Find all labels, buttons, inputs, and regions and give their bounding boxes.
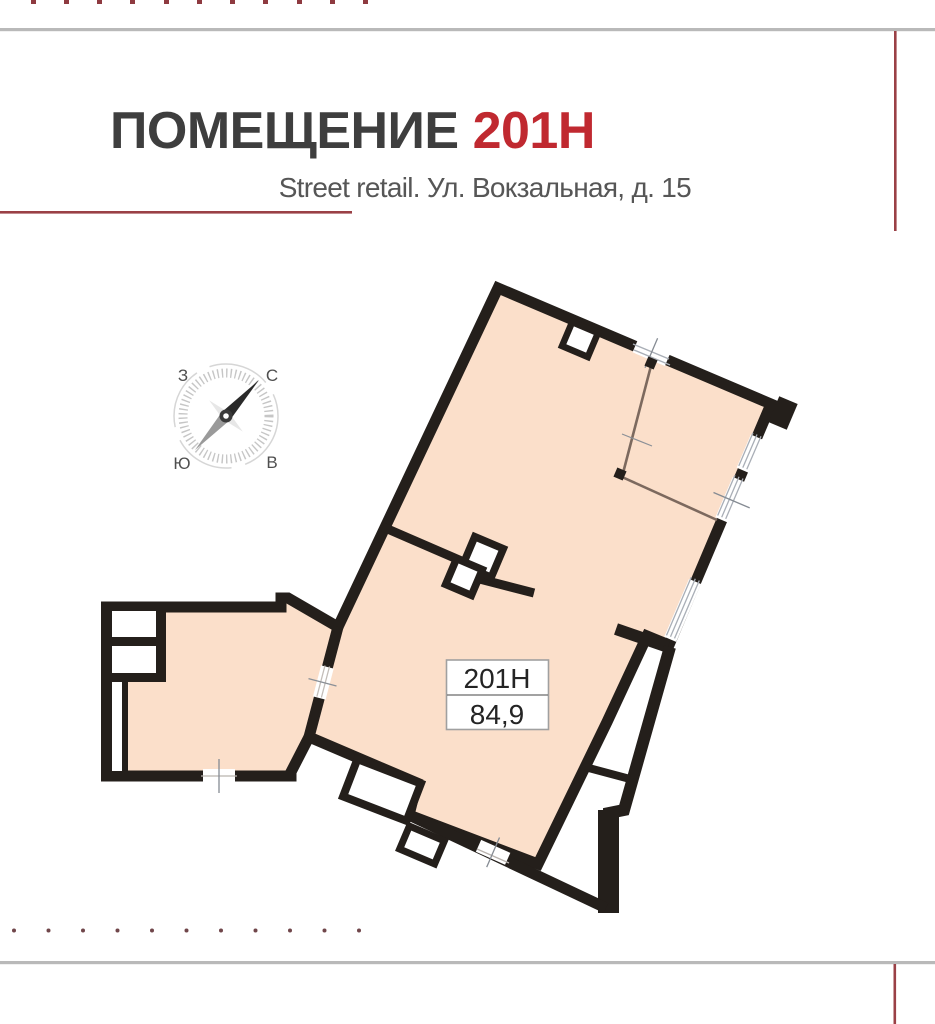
svg-text:З: З xyxy=(178,366,188,385)
svg-text:Ю: Ю xyxy=(173,454,190,473)
svg-text:ПОМЕЩЕНИЕ 201Н: ПОМЕЩЕНИЕ 201Н xyxy=(110,102,595,160)
svg-text:84,9: 84,9 xyxy=(470,699,525,730)
svg-text:Street retail. Ул. Вокзальная,: Street retail. Ул. Вокзальная, д. 15 xyxy=(279,172,691,203)
svg-text:201Н: 201Н xyxy=(464,663,531,694)
svg-text:С: С xyxy=(266,366,278,385)
svg-text:В: В xyxy=(266,453,277,472)
